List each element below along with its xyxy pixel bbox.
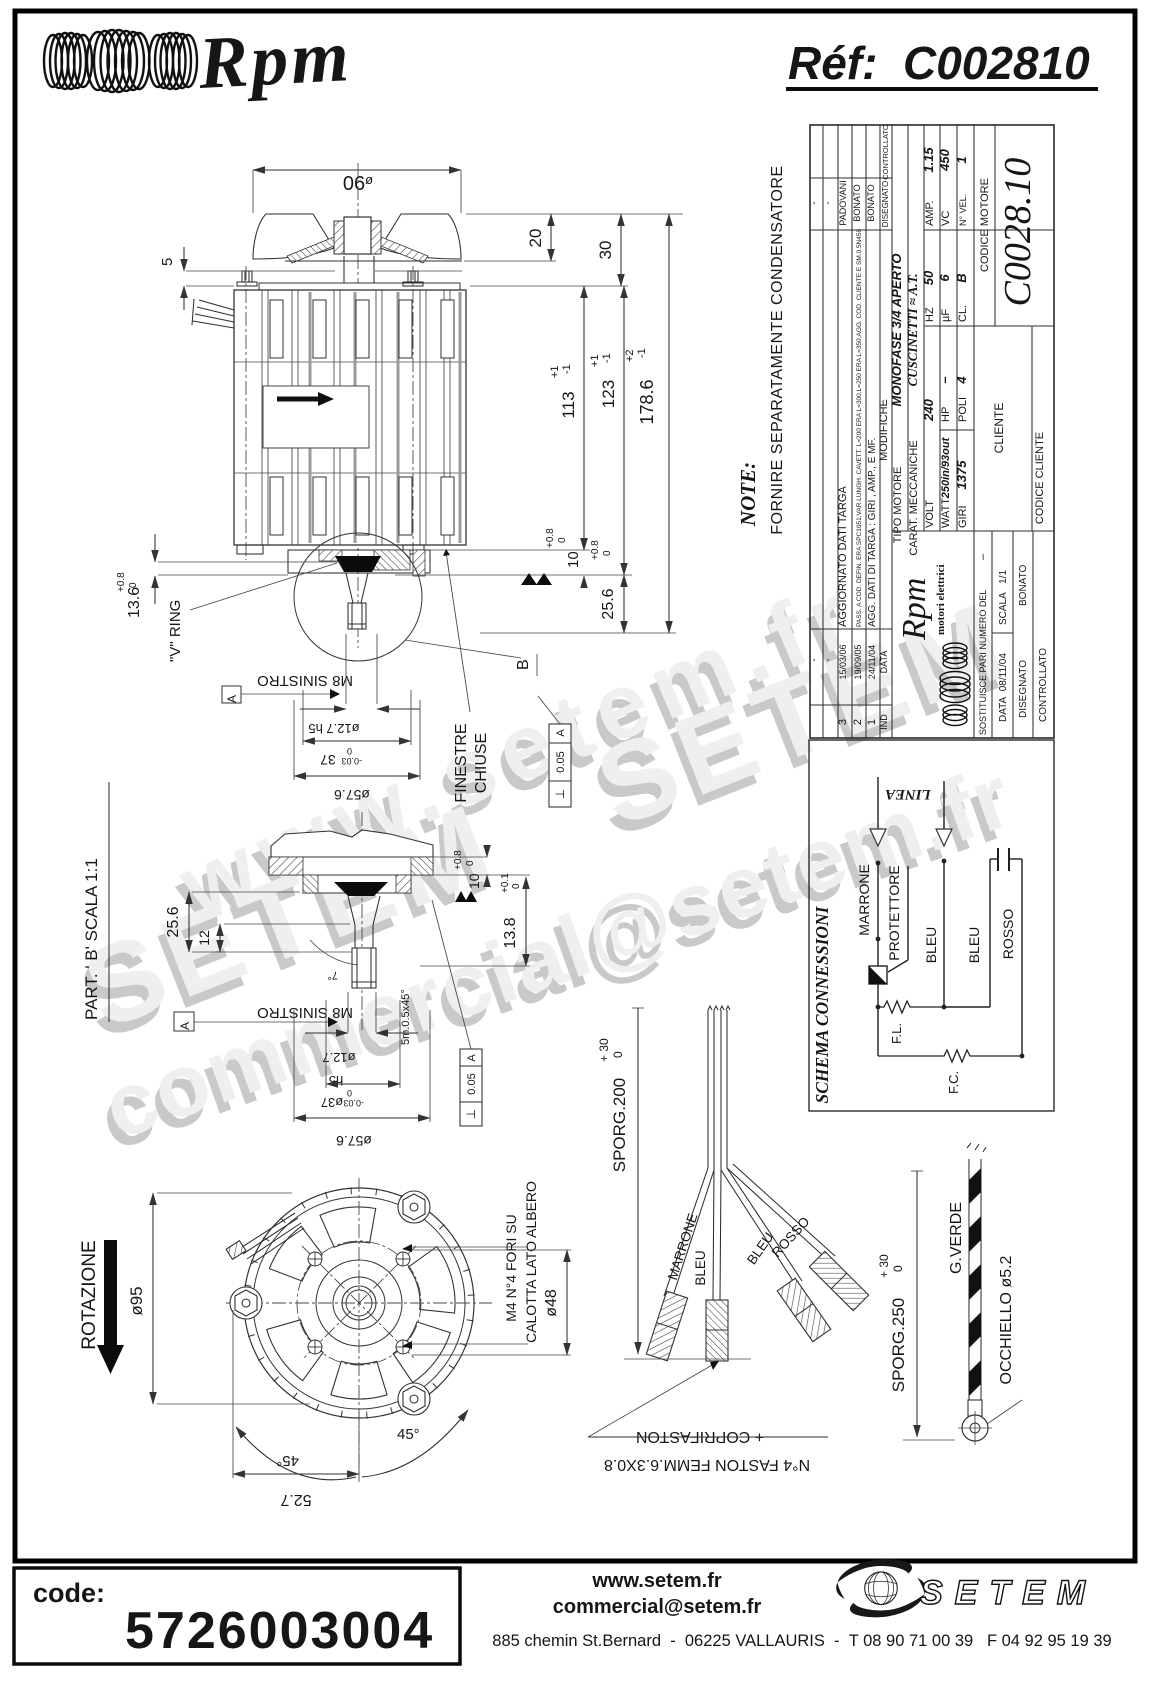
svg-text:37: 37 [320, 752, 336, 768]
svg-text:BONATO: BONATO [852, 184, 862, 221]
svg-text:PART. ' B' SCALA 1:1: PART. ' B' SCALA 1:1 [82, 858, 101, 1020]
svg-text:M8 SINISTRO: M8 SINISTRO [257, 672, 353, 689]
svg-text:+1: +1 [549, 365, 561, 378]
svg-text:ROSSO: ROSSO [1000, 909, 1016, 960]
svg-text:-1: -1 [636, 348, 648, 358]
svg-text:5m.0.5x45°: 5m.0.5x45° [400, 989, 412, 1045]
svg-text:DISEGNATO: DISEGNATO [1018, 660, 1029, 718]
svg-text:SPORG.200: SPORG.200 [610, 1078, 629, 1173]
svg-text:AGG. DATI DI TARGA : GIRI , AM: AGG. DATI DI TARGA : GIRI , AMP., E MF. [867, 438, 878, 627]
svg-text:0: 0 [511, 883, 522, 889]
svg-text:HZ: HZ [924, 307, 936, 322]
svg-text:DATA: DATA [879, 651, 889, 674]
svg-text:WATT: WATT [940, 498, 952, 528]
svg-text:0: 0 [347, 746, 352, 756]
svg-text:+0.1: +0.1 [500, 873, 511, 893]
svg-text:DISEGNATO: DISEGNATO [881, 181, 890, 227]
svg-text:ø95: ø95 [127, 1286, 146, 1315]
svg-text:-0.03: -0.03 [343, 1098, 364, 1108]
svg-text:GIRI: GIRI [957, 505, 969, 528]
svg-text:6: 6 [937, 274, 952, 282]
svg-text:BLEU: BLEU [966, 927, 982, 964]
svg-text:0: 0 [465, 860, 476, 866]
svg-text:A: A [466, 1054, 478, 1062]
svg-text:13.8: 13.8 [502, 917, 519, 948]
svg-text:F.C.: F.C. [946, 1071, 961, 1094]
svg-text:PROTETTORE: PROTETTORE [886, 865, 902, 960]
svg-text:19/09/05: 19/09/05 [853, 644, 863, 679]
svg-text:25.6: 25.6 [600, 588, 617, 619]
svg-text:SPORG.250: SPORG.250 [889, 1298, 908, 1393]
svg-text:µF: µF [940, 309, 952, 322]
svg-text:7°: 7° [327, 969, 338, 981]
svg-text:DATA 08/11/04: DATA 08/11/04 [998, 653, 1009, 722]
svg-text:ø12.7 h5: ø12.7 h5 [308, 721, 359, 736]
svg-text:113: 113 [559, 391, 578, 418]
svg-text:BONATO: BONATO [866, 184, 876, 221]
svg-text:MARRONE: MARRONE [856, 864, 872, 936]
svg-text:-: - [809, 658, 820, 661]
svg-text:CODICE MOTORE: CODICE MOTORE [979, 178, 991, 272]
svg-text:1.15: 1.15 [921, 147, 936, 173]
svg-text:B: B [515, 659, 532, 670]
svg-text:A: A [178, 1022, 192, 1030]
svg-text:-: - [809, 201, 820, 204]
svg-text:CALOTTA LATO ALBERO: CALOTTA LATO ALBERO [523, 1181, 539, 1343]
svg-text:250in/93out: 250in/93out [940, 436, 952, 499]
svg-text:25.6: 25.6 [165, 906, 182, 937]
svg-text:SCHEMA CONNESSIONI: SCHEMA CONNESSIONI [812, 905, 832, 1103]
svg-text:OCCHIELLO ø5.2: OCCHIELLO ø5.2 [998, 1255, 1015, 1384]
svg-text:5726003004: 5726003004 [125, 1602, 434, 1660]
svg-text:52.7: 52.7 [280, 1491, 311, 1508]
svg-text:FORNIRE SEPARATAMENTE CONDENSA: FORNIRE SEPARATAMENTE CONDENSATORE [769, 165, 786, 534]
svg-text:13.6: 13.6 [126, 587, 143, 618]
svg-text:-0.03: -0.03 [341, 756, 362, 766]
svg-text:POLI: POLI [957, 397, 969, 422]
svg-text:SOSTITUISCE PARI NUMERO DEL: SOSTITUISCE PARI NUMERO DEL [978, 590, 988, 735]
svg-text:Rpm: Rpm [196, 15, 354, 105]
svg-text:G.VERDE: G.VERDE [948, 1202, 965, 1274]
svg-text:ø57.6: ø57.6 [334, 787, 370, 803]
svg-text:-1: -1 [561, 364, 573, 374]
svg-text:MONOFASE 3/4 APERTO: MONOFASE 3/4 APERTO [889, 254, 904, 407]
svg-text:VC: VC [940, 211, 952, 226]
svg-text:+ 30: + 30 [877, 1254, 891, 1278]
svg-text:+0.8: +0.8 [453, 850, 464, 870]
svg-text:1375: 1375 [954, 460, 969, 490]
svg-text:10: 10 [565, 551, 582, 568]
svg-text:ø37: ø37 [321, 1095, 343, 1110]
svg-text:30: 30 [596, 241, 615, 260]
svg-text:240: 240 [921, 398, 936, 421]
svg-text:CLIENTE: CLIENTE [992, 403, 1006, 454]
svg-text:www.setem.fr: www.setem.fr [591, 1570, 722, 1592]
svg-text:50: 50 [921, 270, 936, 285]
svg-text:PASS. A COD. DEFIN. ERA SPC105: PASS. A COD. DEFIN. ERA SPC1051,VAR.LUNG… [856, 228, 863, 627]
svg-text:4: 4 [954, 376, 969, 385]
svg-text:AGGIORNATO DATI TARGA: AGGIORNATO DATI TARGA [837, 486, 849, 627]
svg-text:CONTROLLATO: CONTROLLATO [1038, 648, 1049, 722]
svg-text:0: 0 [611, 1051, 625, 1058]
svg-text:3: 3 [837, 719, 849, 725]
svg-text:CARAT. MECCANICHE: CARAT. MECCANICHE [908, 440, 920, 555]
svg-text:Réf: C002810: Réf: C002810 [788, 37, 1090, 89]
svg-text:CUSCINETTI ≈ A.T.: CUSCINETTI ≈ A.T. [905, 273, 920, 386]
svg-text:10: 10 [466, 873, 482, 889]
svg-text:A: A [225, 695, 239, 703]
svg-text:commercial@setem.fr: commercial@setem.fr [553, 1596, 762, 1618]
svg-text:CONTROLLATO: CONTROLLATO [881, 124, 890, 180]
svg-text:45°: 45° [276, 1452, 299, 1469]
svg-text:B: B [954, 273, 969, 282]
svg-text:0: 0 [128, 582, 139, 588]
svg-text:⊥: ⊥ [464, 1109, 478, 1119]
svg-text:PADOVANI: PADOVANI [838, 180, 848, 225]
svg-text:+0.8: +0.8 [545, 528, 556, 548]
svg-text:VOLT: VOLT [924, 500, 936, 528]
svg-text:+1: +1 [589, 354, 601, 367]
svg-text:CHIUSE: CHIUSE [473, 733, 490, 793]
svg-text:ROSSO: ROSSO [769, 1214, 813, 1260]
svg-text:–: – [977, 553, 989, 560]
svg-text:-: - [823, 658, 834, 661]
svg-text:BLEU: BLEU [693, 1250, 708, 1285]
svg-text:–: – [937, 376, 952, 383]
svg-text:FINESTRE: FINESTRE [453, 723, 470, 802]
svg-text:h5: h5 [329, 1073, 343, 1088]
svg-text:ø57.6: ø57.6 [336, 1133, 372, 1149]
svg-text:NOTE:: NOTE: [736, 462, 760, 527]
svg-text:BONATO: BONATO [1018, 564, 1029, 606]
svg-text:-1: -1 [601, 353, 613, 363]
svg-text:F.L.: F.L. [889, 1023, 904, 1044]
svg-text:ø48: ø48 [543, 1289, 560, 1317]
svg-text:+ 30: + 30 [597, 1038, 611, 1062]
svg-text:MODIFICHE: MODIFICHE [878, 399, 890, 461]
svg-text:LINEA: LINEA [885, 786, 932, 802]
svg-text:0: 0 [891, 1265, 905, 1272]
svg-text:BLEU: BLEU [923, 927, 939, 964]
svg-text:0: 0 [602, 550, 613, 556]
svg-text:0.05: 0.05 [466, 1073, 478, 1094]
svg-text:45°: 45° [397, 1426, 420, 1443]
svg-text:+0.8: +0.8 [590, 540, 601, 560]
svg-text:N°4 FASTON FEMM.6.3X0.8: N°4 FASTON FEMM.6.3X0.8 [604, 1456, 810, 1473]
svg-text:A: A [555, 729, 567, 737]
svg-text:24/11/04: 24/11/04 [867, 645, 877, 679]
svg-text:5: 5 [159, 258, 176, 266]
svg-text:AMP.: AMP. [924, 201, 936, 226]
svg-text:SCALA 1/1: SCALA 1/1 [998, 570, 1009, 625]
svg-text:SETEM: SETEM [920, 1574, 1097, 1612]
svg-text:"V" RING: "V" RING [167, 600, 184, 662]
svg-text:178.6: 178.6 [637, 379, 657, 424]
svg-text:12: 12 [196, 930, 212, 946]
svg-text:CL.: CL. [957, 305, 969, 322]
svg-text:Rpm: Rpm [896, 578, 933, 641]
svg-text:20: 20 [526, 229, 545, 248]
svg-text:M8 SINISTRO: M8 SINISTRO [257, 1004, 353, 1021]
svg-text:C0028.10: C0028.10 [997, 158, 1039, 307]
svg-text:885 chemin St.Bernard - 0622: 885 chemin St.Bernard - 06225 VALLAURIS … [492, 1632, 1111, 1650]
svg-text:TIPO MOTORE: TIPO MOTORE [892, 467, 904, 544]
svg-text:N° VEL.: N° VEL. [958, 194, 968, 226]
svg-text:450: 450 [937, 148, 952, 171]
svg-text:ø12.7: ø12.7 [322, 1050, 355, 1065]
svg-text:IND: IND [879, 714, 889, 730]
svg-text:2: 2 [852, 719, 864, 725]
svg-text:+0.8: +0.8 [116, 572, 127, 592]
svg-text:1: 1 [954, 156, 969, 163]
svg-text:123: 123 [599, 380, 618, 408]
svg-text:motori elettrici: motori elettrici [935, 564, 947, 635]
svg-text:+2: +2 [624, 349, 636, 362]
svg-text:1: 1 [866, 719, 878, 725]
svg-text:⊥: ⊥ [553, 789, 567, 799]
svg-text:M4 N°4 FORI SU: M4 N°4 FORI SU [503, 1214, 519, 1322]
svg-text:HP: HP [940, 407, 952, 422]
svg-text:0.05: 0.05 [555, 751, 567, 772]
svg-text:0: 0 [557, 537, 568, 543]
svg-text:code:: code: [33, 1578, 105, 1608]
svg-text:CODICE CLIENTE: CODICE CLIENTE [1034, 432, 1046, 524]
svg-text:-: - [823, 201, 834, 204]
svg-text:0: 0 [347, 1088, 352, 1098]
svg-text:15/03/06: 15/03/06 [838, 644, 848, 679]
svg-text:ROTAZIONE: ROTAZIONE [79, 1240, 100, 1349]
